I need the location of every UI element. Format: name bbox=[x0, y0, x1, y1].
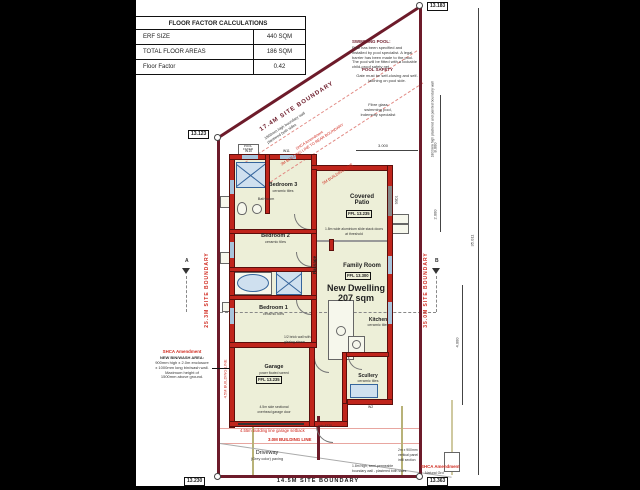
ffl-patio: FFL 13.235 bbox=[346, 210, 372, 218]
step bbox=[392, 224, 409, 234]
room-label-bedroom2: Bedroom 2 bbox=[248, 233, 303, 239]
dim-label-3: 3.000 bbox=[378, 143, 388, 148]
boundary-label-left: 25.3M SITE BOUNDARY bbox=[204, 230, 210, 350]
section-marker-a-icon bbox=[182, 268, 190, 274]
site-boundary-left bbox=[217, 137, 220, 477]
dwelling-label: New Dwelling 207 sqm bbox=[320, 283, 392, 303]
shower-icon bbox=[276, 271, 302, 295]
geyser-icon bbox=[352, 340, 361, 349]
boundary-label-right: 35.0M SITE BOUNDARY bbox=[423, 230, 429, 350]
room-label-bedroom1: Bedroom 1 bbox=[246, 305, 301, 311]
window bbox=[242, 155, 258, 159]
window-tag: SSD1 bbox=[394, 196, 398, 205]
section-line-riser bbox=[186, 276, 188, 312]
room-finish-bedroom1: ceramic tiles bbox=[246, 312, 301, 317]
dim-line-3 bbox=[356, 150, 418, 151]
room-label-bathroom: Bathroom bbox=[252, 197, 280, 202]
boundary-label-bottom: 14.5M SITE BOUNDARY bbox=[258, 478, 378, 484]
room-finish-bedroom2: ceramic tiles bbox=[248, 240, 303, 245]
half-brick-note: 1/2 brick wall with glazing above bbox=[284, 335, 324, 345]
room-label-patio: Covered Patio bbox=[338, 194, 386, 206]
min-clear-note: min 4270 bbox=[318, 424, 332, 429]
section-letter-a: A bbox=[185, 258, 189, 264]
room-finish-garage: power floated screed bbox=[250, 371, 298, 376]
garage-door-note: 4.5m side sectional overhead garage door bbox=[244, 405, 304, 415]
letterbox-right bbox=[500, 0, 640, 490]
pool-filter-label: POOL FILTER bbox=[239, 145, 257, 152]
toilet-icon bbox=[237, 202, 247, 215]
building-line-3m-label-b: 3.0M BUILDING LINE bbox=[268, 438, 311, 443]
spot-level: 13.230 bbox=[184, 477, 205, 486]
kitchen-sink-icon bbox=[336, 326, 346, 336]
row-value: 440 SQM bbox=[254, 30, 305, 44]
driveway-label: Driveway bbox=[242, 450, 292, 456]
bottom-wall-note: 1.8m high, semi-permeable boundary wall … bbox=[352, 464, 414, 474]
meter-box bbox=[220, 196, 230, 208]
section-letter-b: B bbox=[435, 258, 439, 264]
left-building-line-label: 4.5M BUILDING LINE bbox=[224, 338, 229, 398]
garage-door bbox=[238, 423, 304, 425]
room-finish-bedroom3: ceramic tiles bbox=[258, 189, 308, 194]
wall-left-outer bbox=[230, 155, 234, 427]
wall-scullery-bottom bbox=[343, 400, 392, 404]
driveway-sub: (Grey color) paving bbox=[242, 457, 292, 462]
window bbox=[388, 256, 392, 274]
dim-line-35 bbox=[478, 8, 479, 475]
site-plan-drawing: FLOOR FACTOR CALCULATIONS ERF SIZE 440 S… bbox=[0, 0, 640, 490]
boundary-peg-icon bbox=[214, 134, 221, 141]
boundary-peg-icon bbox=[416, 473, 423, 480]
fibre-glass-pool-note: Fibre glass swimming pool, indemnity spe… bbox=[352, 103, 404, 117]
letterbox-bottom bbox=[136, 486, 500, 490]
letterbox-left bbox=[0, 0, 136, 490]
pool-safety-note: Gate must be self-closing and self-latch… bbox=[356, 74, 418, 84]
row-value: 0.42 bbox=[254, 60, 305, 74]
room-label-passage: Passage bbox=[312, 250, 318, 280]
section-marker-b-icon bbox=[432, 268, 440, 274]
wall-bath-bed1 bbox=[230, 296, 316, 299]
spot-level: 13.123 bbox=[188, 130, 209, 139]
slide-stack-door bbox=[315, 240, 388, 242]
room-label-bedroom3: Bedroom 3 bbox=[258, 182, 308, 188]
dim-label-4: 4.000 bbox=[455, 337, 460, 347]
room-label-family: Family Room bbox=[336, 263, 388, 269]
wall-scullery-top bbox=[343, 353, 388, 356]
wall-passage bbox=[330, 240, 333, 250]
boundary-peg-icon bbox=[214, 473, 221, 480]
right-wall-note: 1800mm high plastered and painted bounda… bbox=[431, 67, 436, 157]
wall-scullery-left bbox=[343, 353, 346, 403]
basin-icon bbox=[252, 204, 262, 214]
natural-ground-note: Natural Grd bbox=[425, 471, 444, 476]
window bbox=[230, 242, 234, 258]
section-line-riser bbox=[436, 276, 438, 312]
scullery-sink-icon bbox=[350, 384, 378, 398]
bath2-icon bbox=[237, 274, 269, 292]
room-finish-kitchen: ceramic tiles bbox=[360, 323, 396, 328]
infill-note: 2m x 900mm vertical panel infill section bbox=[398, 448, 438, 462]
spot-level: 13.363 bbox=[427, 477, 448, 486]
wall-garage-right bbox=[310, 345, 314, 426]
window bbox=[230, 180, 234, 194]
dim-label-35: 35.011 bbox=[469, 235, 474, 247]
patio-door-ssd1 bbox=[388, 186, 392, 216]
dim-line-4 bbox=[462, 285, 463, 405]
shca-note-bottom: SHCA Amendment bbox=[421, 465, 460, 470]
dim-label-2: 2.000 bbox=[433, 209, 438, 219]
site-boundary-right bbox=[419, 5, 422, 477]
spot-level: 13.183 bbox=[427, 2, 448, 11]
meter-box bbox=[220, 252, 230, 264]
boundary-peg-icon bbox=[416, 2, 423, 9]
window-tag: W2 bbox=[368, 405, 373, 409]
step bbox=[392, 214, 409, 224]
ffl-garage: FFL 13.235 bbox=[256, 376, 282, 384]
dim-line-2 bbox=[440, 200, 441, 232]
bin-note: 900mm high x 2.0m enclosure x 1000mm lon… bbox=[148, 361, 216, 380]
dim-line-8 bbox=[440, 95, 441, 200]
window bbox=[230, 308, 234, 324]
room-finish-scullery: ceramic tiles bbox=[348, 379, 388, 384]
room-label-garage: Garage bbox=[250, 364, 298, 370]
row-value: 186 SQM bbox=[254, 45, 305, 59]
garage-setback-label: 4.55m building line garage setback bbox=[240, 429, 305, 434]
slide-doors-note: 1.8m wide aluminium slide stack doors at… bbox=[322, 227, 386, 237]
wall-bed2-bath bbox=[230, 268, 316, 271]
ffl-family: FFL 13.300 bbox=[345, 272, 371, 280]
window-tag: W11 bbox=[283, 149, 290, 153]
